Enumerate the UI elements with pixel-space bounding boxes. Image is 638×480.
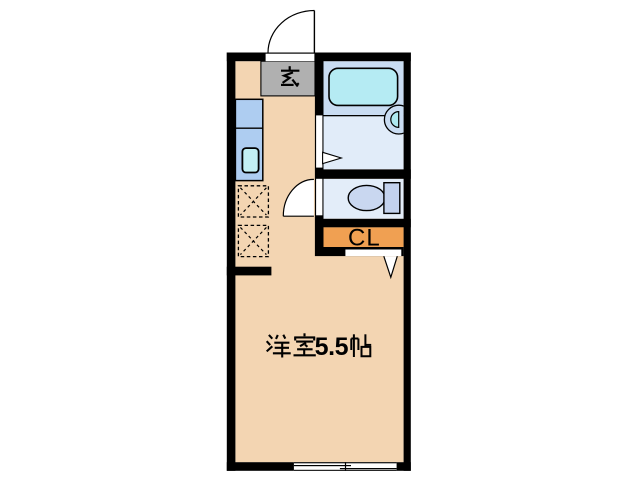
svg-text:CL: CL (348, 224, 381, 251)
svg-text:5.5: 5.5 (315, 333, 349, 361)
